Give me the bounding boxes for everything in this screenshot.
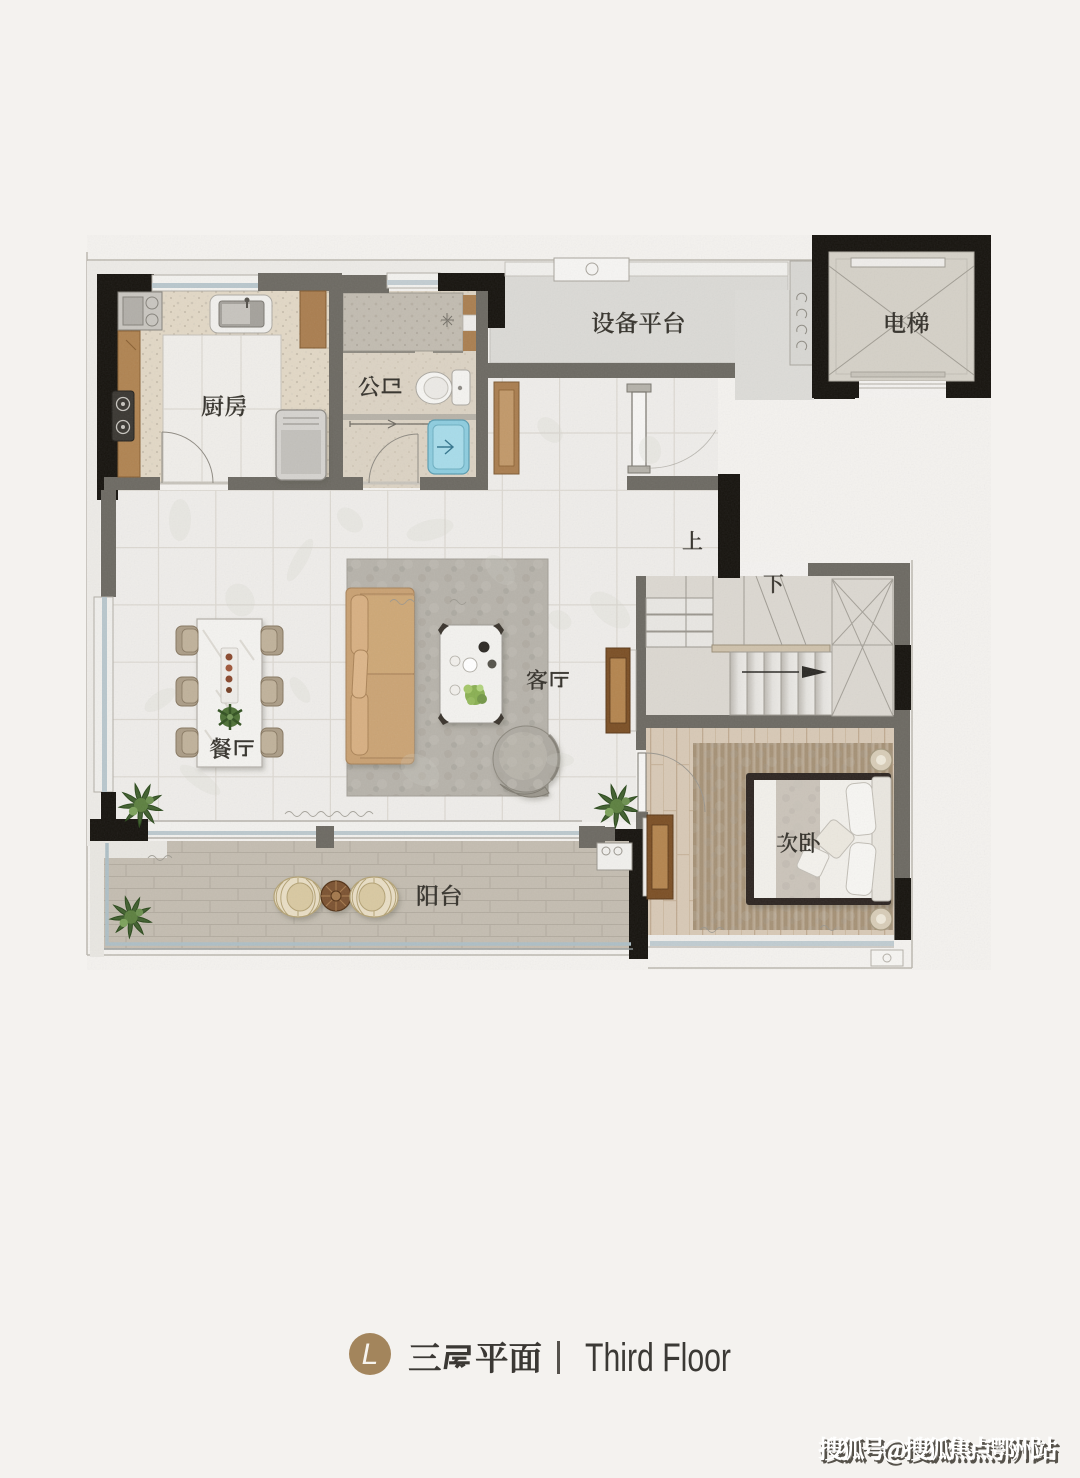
- svg-text:L: L: [362, 1338, 379, 1371]
- svg-text:Third Floor: Third Floor: [585, 1336, 731, 1380]
